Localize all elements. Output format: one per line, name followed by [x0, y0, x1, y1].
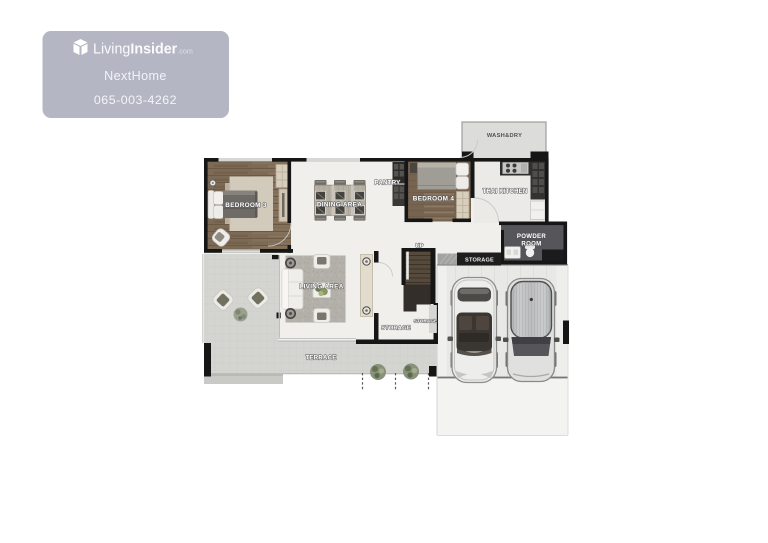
- svg-text:THAI KITCHEN: THAI KITCHEN: [483, 189, 528, 195]
- svg-text:STORAGE: STORAGE: [414, 319, 437, 324]
- svg-text:STORAGE: STORAGE: [381, 325, 410, 331]
- svg-text:LIVING AREA: LIVING AREA: [299, 283, 343, 290]
- svg-text:PANTRY: PANTRY: [375, 179, 402, 186]
- svg-text:DINING AREA: DINING AREA: [317, 201, 362, 208]
- svg-text:WASH&DRY: WASH&DRY: [487, 133, 522, 139]
- svg-text:TERRACE: TERRACE: [305, 356, 336, 362]
- svg-text:065-003-4262: 065-003-4262: [94, 93, 177, 107]
- svg-text:ROOM: ROOM: [521, 240, 541, 247]
- svg-text:BEDROOM 3: BEDROOM 3: [225, 202, 267, 209]
- svg-text:POWDER: POWDER: [517, 233, 547, 240]
- svg-text:NextHome: NextHome: [104, 69, 167, 83]
- svg-text:STORAGE: STORAGE: [465, 258, 494, 264]
- svg-text:BEDROOM 4: BEDROOM 4: [413, 195, 455, 202]
- svg-text:UP: UP: [416, 243, 424, 249]
